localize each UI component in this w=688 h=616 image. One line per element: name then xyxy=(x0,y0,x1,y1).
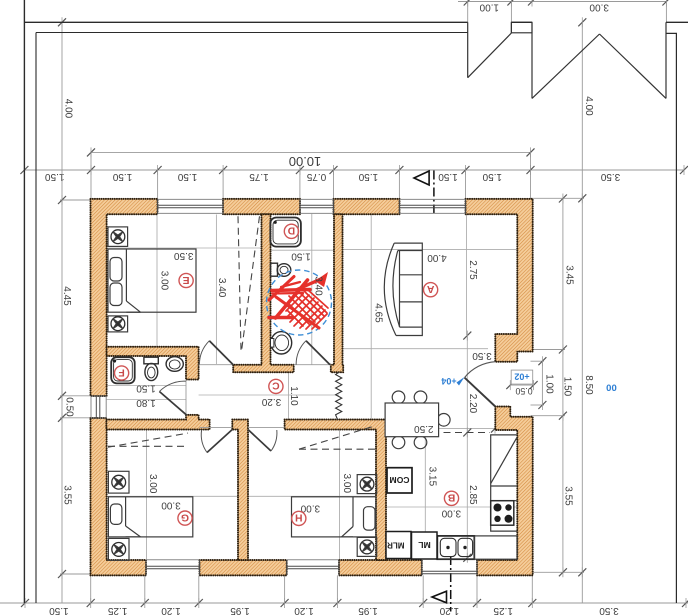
svg-text:COM: COM xyxy=(389,475,409,485)
svg-text:8.50: 8.50 xyxy=(583,375,594,395)
svg-text:1.50: 1.50 xyxy=(112,171,132,182)
svg-text:B: B xyxy=(448,492,455,503)
svg-text:MLR: MLR xyxy=(387,541,405,550)
svg-text:A: A xyxy=(426,283,434,294)
svg-text:1.50: 1.50 xyxy=(438,171,458,182)
svg-text:+02: +02 xyxy=(514,371,529,381)
svg-text:4.45: 4.45 xyxy=(61,286,72,306)
svg-text:1.50: 1.50 xyxy=(482,171,502,182)
svg-text:3.55: 3.55 xyxy=(62,485,73,505)
svg-text:2.85: 2.85 xyxy=(467,485,478,505)
svg-text:3.00: 3.00 xyxy=(147,474,158,494)
svg-text:0.50: 0.50 xyxy=(515,386,532,396)
svg-text:3.50: 3.50 xyxy=(472,350,492,361)
svg-text:4.00: 4.00 xyxy=(583,96,594,116)
svg-text:3.00: 3.00 xyxy=(441,508,461,519)
svg-text:1.25: 1.25 xyxy=(493,605,513,616)
svg-text:2.50: 2.50 xyxy=(414,423,434,434)
svg-text:3.55: 3.55 xyxy=(562,486,573,506)
svg-text:ML: ML xyxy=(418,540,430,550)
svg-text:G: G xyxy=(181,511,189,522)
svg-text:1.50: 1.50 xyxy=(177,171,197,182)
svg-text:1.50: 1.50 xyxy=(291,251,311,262)
svg-text:2.20: 2.20 xyxy=(467,394,478,414)
svg-text:1.95: 1.95 xyxy=(230,605,250,616)
svg-text:3.00: 3.00 xyxy=(341,474,352,494)
svg-text:F: F xyxy=(118,366,124,377)
svg-text:3.40: 3.40 xyxy=(216,278,227,298)
svg-text:4.00: 4.00 xyxy=(63,99,74,119)
svg-text:3.00: 3.00 xyxy=(159,271,170,291)
svg-text:1.75: 1.75 xyxy=(249,171,269,182)
svg-text:2.75: 2.75 xyxy=(467,260,478,280)
svg-text:1.20: 1.20 xyxy=(294,605,314,616)
svg-text:1.00: 1.00 xyxy=(479,2,499,13)
svg-text:1.80: 1.80 xyxy=(136,397,156,408)
svg-text:4.00: 4.00 xyxy=(427,252,447,263)
svg-text:3.50: 3.50 xyxy=(599,605,619,616)
svg-text:0.75: 0.75 xyxy=(306,171,326,182)
svg-text:1.50: 1.50 xyxy=(45,171,65,182)
svg-text:1.50: 1.50 xyxy=(358,171,378,182)
svg-text:00: 00 xyxy=(606,381,617,392)
svg-text:1.50: 1.50 xyxy=(49,605,69,616)
svg-text:3.00: 3.00 xyxy=(589,2,609,13)
svg-text:1.20: 1.20 xyxy=(439,605,459,616)
svg-text:3.40: 3.40 xyxy=(313,276,324,296)
svg-text:+04: +04 xyxy=(441,376,456,386)
svg-text:0.50: 0.50 xyxy=(63,397,74,417)
svg-text:4.65: 4.65 xyxy=(373,303,384,323)
svg-text:H: H xyxy=(295,512,302,523)
svg-text:C: C xyxy=(272,380,280,391)
svg-text:1.25: 1.25 xyxy=(107,605,127,616)
svg-text:10.00: 10.00 xyxy=(289,154,322,169)
svg-text:3.20: 3.20 xyxy=(261,396,281,407)
svg-text:1.50: 1.50 xyxy=(136,383,156,394)
svg-text:E: E xyxy=(183,274,190,285)
svg-text:1.00: 1.00 xyxy=(544,374,555,394)
svg-text:1.50: 1.50 xyxy=(561,377,572,397)
svg-text:3.50: 3.50 xyxy=(174,250,194,261)
svg-text:3.15: 3.15 xyxy=(427,467,438,487)
svg-text:D: D xyxy=(288,225,295,236)
svg-text:3.50: 3.50 xyxy=(600,171,620,182)
svg-text:3.00: 3.00 xyxy=(161,500,181,511)
svg-text:1.95: 1.95 xyxy=(358,605,378,616)
svg-text:1.20: 1.20 xyxy=(161,605,181,616)
svg-text:3.45: 3.45 xyxy=(563,265,574,285)
svg-text:1.10: 1.10 xyxy=(288,386,299,406)
